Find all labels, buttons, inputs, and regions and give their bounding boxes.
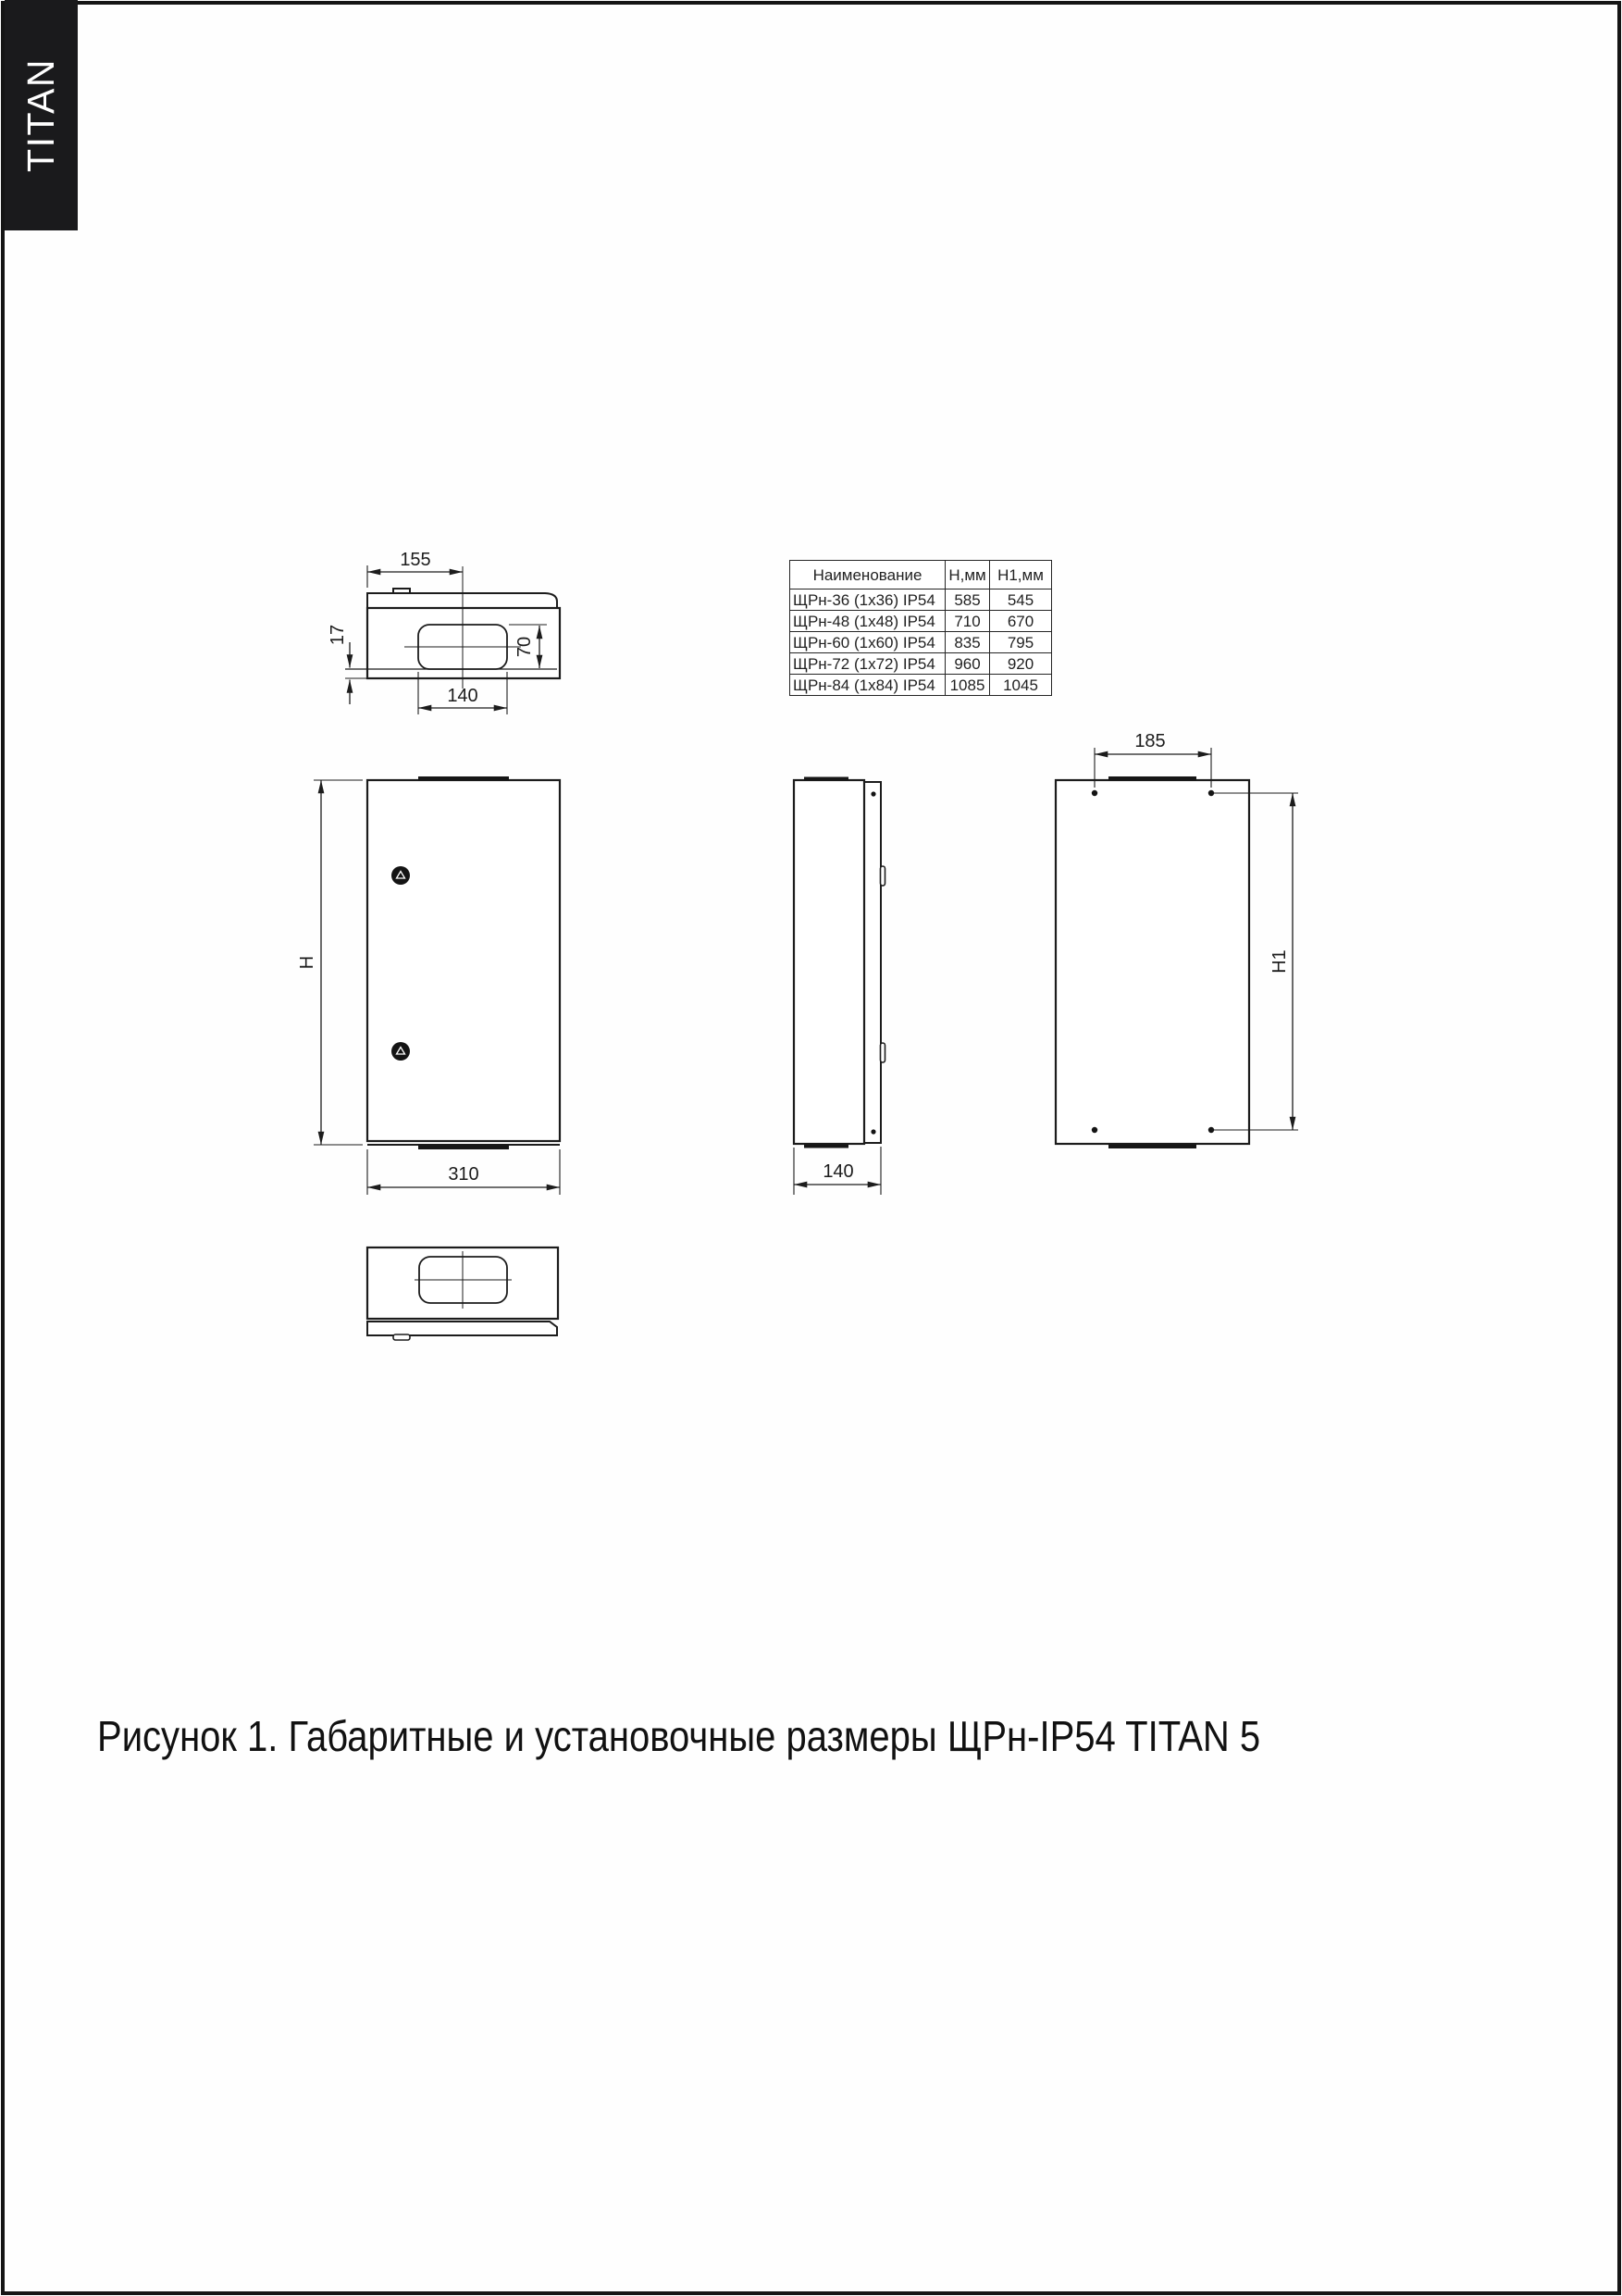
side-screw-bottom xyxy=(871,1129,875,1134)
rear-bar-top xyxy=(1108,776,1196,781)
model-h1: 795 xyxy=(990,632,1052,653)
side-view-body xyxy=(864,782,881,1143)
rear-hole-spacing-dim-label: 185 xyxy=(1134,731,1165,751)
bottom-door-edge xyxy=(367,1322,557,1335)
front-view: H 310 xyxy=(297,776,560,1195)
side-hinge-lower xyxy=(881,1043,885,1062)
spec-table-header-row: Наименование Н,мм Н1,мм xyxy=(790,561,1052,590)
model-name: ЩРн-60 (1х60) IP54 xyxy=(790,632,946,653)
figure-caption: Рисунок 1. Габаритные и установочные раз… xyxy=(97,1711,1260,1761)
side-view: 140 xyxy=(794,777,885,1196)
table-row: ЩРн-48 (1х48) IP54 710 670 xyxy=(790,611,1052,632)
model-h: 960 xyxy=(946,653,990,675)
rear-view-body xyxy=(1056,780,1249,1144)
model-h: 585 xyxy=(946,590,990,611)
front-view-door xyxy=(367,780,560,1141)
rear-bar-bottom xyxy=(1108,1145,1196,1149)
model-h1: 920 xyxy=(990,653,1052,675)
top-width-dim-label: 155 xyxy=(400,550,430,570)
rear-mount-height-dim-label: H1 xyxy=(1269,949,1290,974)
front-height-dim-label: H xyxy=(297,956,317,969)
front-hinge-bar-bottom xyxy=(418,1146,509,1150)
model-name: ЩРн-72 (1х72) IP54 xyxy=(790,653,946,675)
model-h: 835 xyxy=(946,632,990,653)
table-row: ЩРн-84 (1х84) IP54 1085 1045 xyxy=(790,675,1052,696)
bottom-view xyxy=(367,1247,558,1340)
door-lock-lower xyxy=(391,1042,410,1061)
side-hinge-bar-bottom xyxy=(804,1145,848,1148)
table-row: ЩРн-36 (1х36) IP54 585 545 xyxy=(790,590,1052,611)
table-row: ЩРн-60 (1х60) IP54 835 795 xyxy=(790,632,1052,653)
model-h1: 545 xyxy=(990,590,1052,611)
top-view: 155 17 70 140 xyxy=(328,550,560,714)
top-cutout-width-dim-label: 140 xyxy=(447,686,477,706)
front-width-dim-label: 310 xyxy=(448,1164,478,1185)
door-lock-upper xyxy=(391,866,410,885)
mount-hole-bl xyxy=(1092,1127,1097,1133)
top-offset-dim-label: 17 xyxy=(328,625,348,645)
top-cutout-height-dim-label: 70 xyxy=(514,637,535,657)
model-h: 1085 xyxy=(946,675,990,696)
col-header-name: Наименование xyxy=(790,561,946,590)
col-header-h1: Н1,мм xyxy=(990,561,1052,590)
spec-table: Наименование Н,мм Н1,мм ЩРн-36 (1х36) IP… xyxy=(789,560,1052,696)
table-row: ЩРн-72 (1х72) IP54 960 920 xyxy=(790,653,1052,675)
side-screw-top xyxy=(871,791,875,796)
model-h1: 670 xyxy=(990,611,1052,632)
model-name: ЩРн-48 (1х48) IP54 xyxy=(790,611,946,632)
model-name: ЩРн-84 (1х84) IP54 xyxy=(790,675,946,696)
side-view-door xyxy=(794,780,864,1144)
model-h1: 1045 xyxy=(990,675,1052,696)
mount-hole-tl xyxy=(1092,790,1097,796)
bottom-lock-bump xyxy=(393,1334,410,1340)
col-header-h: Н,мм xyxy=(946,561,990,590)
rear-view: 185 H1 xyxy=(1056,731,1298,1148)
dimension-drawing: 155 17 70 140 xyxy=(0,0,1622,2296)
document-page: TITAN 155 17 xyxy=(0,0,1622,2296)
front-hinge-bar-top xyxy=(418,776,509,781)
side-depth-dim-label: 140 xyxy=(823,1161,853,1182)
model-h: 710 xyxy=(946,611,990,632)
model-name: ЩРн-36 (1х36) IP54 xyxy=(790,590,946,611)
side-hinge-bar-top xyxy=(804,777,848,781)
side-hinge-upper xyxy=(881,866,885,886)
